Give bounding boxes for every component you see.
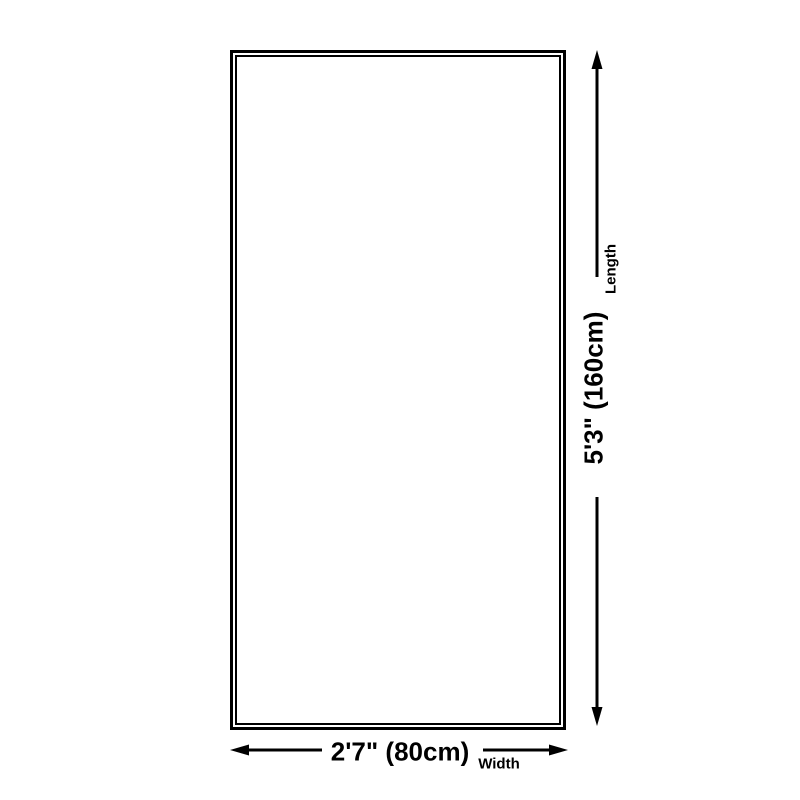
dimension-diagram: 5'3" (160cm) Length 2'7" (80cm) Width	[0, 0, 800, 800]
length-value: 5'3" (160cm)	[579, 312, 610, 465]
width-caption: Width	[478, 756, 520, 773]
product-outline-inner-border	[235, 55, 561, 725]
length-arrow-up-head	[592, 50, 603, 69]
product-outline	[230, 50, 566, 730]
width-arrow-right-head	[549, 745, 568, 756]
width-value: 2'7" (80cm)	[331, 737, 469, 768]
length-caption: Length	[603, 244, 620, 294]
width-arrow-left-head	[230, 745, 249, 756]
length-arrow-down-head	[592, 707, 603, 726]
